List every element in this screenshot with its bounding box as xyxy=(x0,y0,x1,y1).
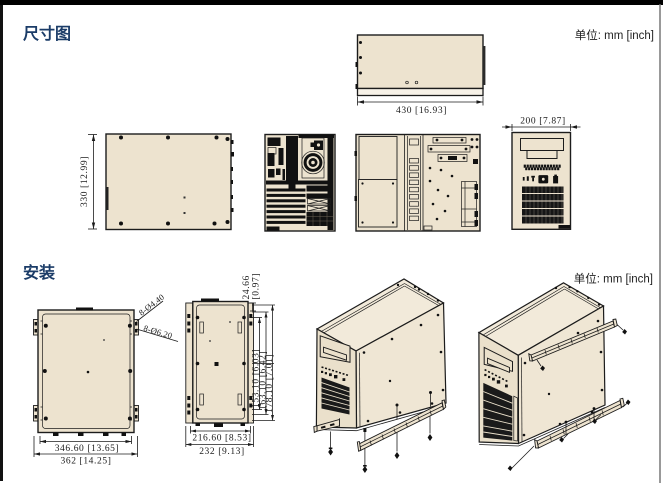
svg-text:单位: mm [inch]: 单位: mm [inch] xyxy=(574,272,653,286)
svg-text:安装: 安装 xyxy=(23,263,55,282)
svg-text:330 [12.99]: 330 [12.99] xyxy=(80,156,90,207)
svg-text:尺寸图: 尺寸图 xyxy=(23,24,71,43)
svg-text:362 [14.25]: 362 [14.25] xyxy=(61,457,112,467)
svg-text:单位: mm [inch]: 单位: mm [inch] xyxy=(575,28,654,42)
svg-text:[0.97]: [0.97] xyxy=(252,273,262,300)
svg-text:24.66: 24.66 xyxy=(242,275,252,299)
svg-text:200 [7.87]: 200 [7.87] xyxy=(520,117,566,127)
svg-text:232 [9.13]: 232 [9.13] xyxy=(199,447,245,457)
svg-text:430 [16.93]: 430 [16.93] xyxy=(396,106,447,116)
svg-text:216.60 [8.53]: 216.60 [8.53] xyxy=(192,434,251,444)
svg-text:178.10 [7.01]: 178.10 [7.01] xyxy=(265,354,275,413)
svg-text:346.60 [13.65]: 346.60 [13.65] xyxy=(55,444,120,454)
